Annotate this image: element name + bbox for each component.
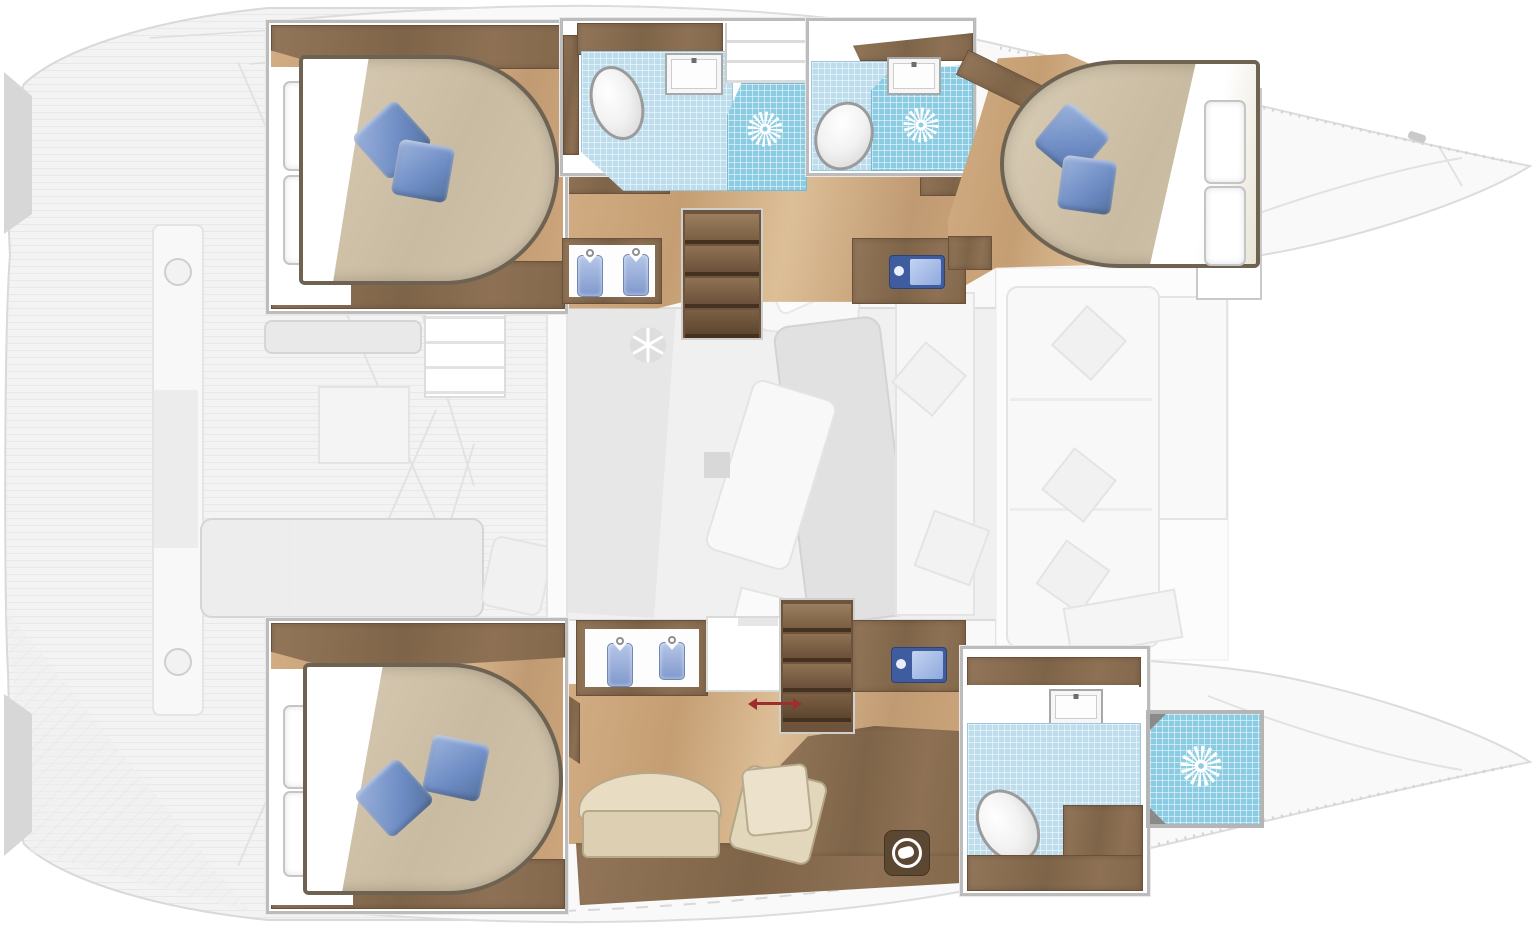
bathroom-port-aft: [560, 18, 810, 176]
beam-ring-top: [164, 258, 192, 286]
pillow: [1057, 155, 1118, 216]
transom-wedge-bottom: [4, 694, 32, 856]
cabin-port-fwd: [948, 40, 1260, 270]
salon-box: [704, 452, 730, 478]
cabin-owner: [266, 618, 568, 914]
pillow: [422, 734, 491, 803]
deck-sunbed[interactable]: [200, 518, 484, 618]
shower-sunburst-icon: [741, 105, 789, 153]
stairs-stbd[interactable]: [779, 598, 855, 734]
tv-icon: [891, 647, 947, 683]
access-arrow: [752, 702, 798, 705]
stbd-entry-landing: [706, 616, 784, 692]
shower-sunburst-icon: [1173, 738, 1229, 794]
wardrobe-port[interactable]: [562, 238, 662, 304]
hanging-shirt-icon: [659, 642, 685, 680]
deck-bench: [264, 320, 422, 354]
hanging-shirt-icon: [623, 254, 649, 296]
yacht-floorplan: [0, 0, 1534, 928]
bow-sofa-side: [1158, 296, 1228, 520]
lounge-bench[interactable]: [578, 770, 720, 854]
shower-sunburst-icon: [897, 101, 945, 149]
companionway-steps[interactable]: [725, 23, 807, 83]
sink[interactable]: [665, 53, 723, 95]
beam-ring-bottom: [164, 648, 192, 676]
deck-locker-mid: [318, 386, 410, 464]
pillow: [391, 139, 456, 204]
transom-wedge-top: [4, 72, 32, 234]
shower-stall-stbd[interactable]: [1146, 710, 1264, 828]
headboard-shelf[interactable]: [1204, 186, 1246, 266]
washing-machine-icon[interactable]: [884, 830, 930, 876]
headboard-shelf[interactable]: [1204, 100, 1246, 184]
sink[interactable]: [887, 57, 941, 95]
lounge-cushion: [741, 763, 814, 838]
wardrobe-stbd[interactable]: [576, 620, 708, 696]
bathroom-stbd: [960, 646, 1150, 896]
hanging-shirt-icon: [607, 643, 633, 687]
tv-icon: [889, 255, 945, 289]
hanging-shirt-icon: [577, 255, 603, 297]
stairs-port[interactable]: [681, 208, 763, 340]
cockpit-beam-mid: [154, 390, 198, 548]
cabin-port-aft: [266, 20, 568, 314]
salon-front-wall: [546, 296, 568, 626]
sink[interactable]: [1049, 689, 1103, 725]
snowflake-fridge-icon: [628, 325, 668, 365]
tv-cabinet-stbd[interactable]: [852, 620, 966, 692]
